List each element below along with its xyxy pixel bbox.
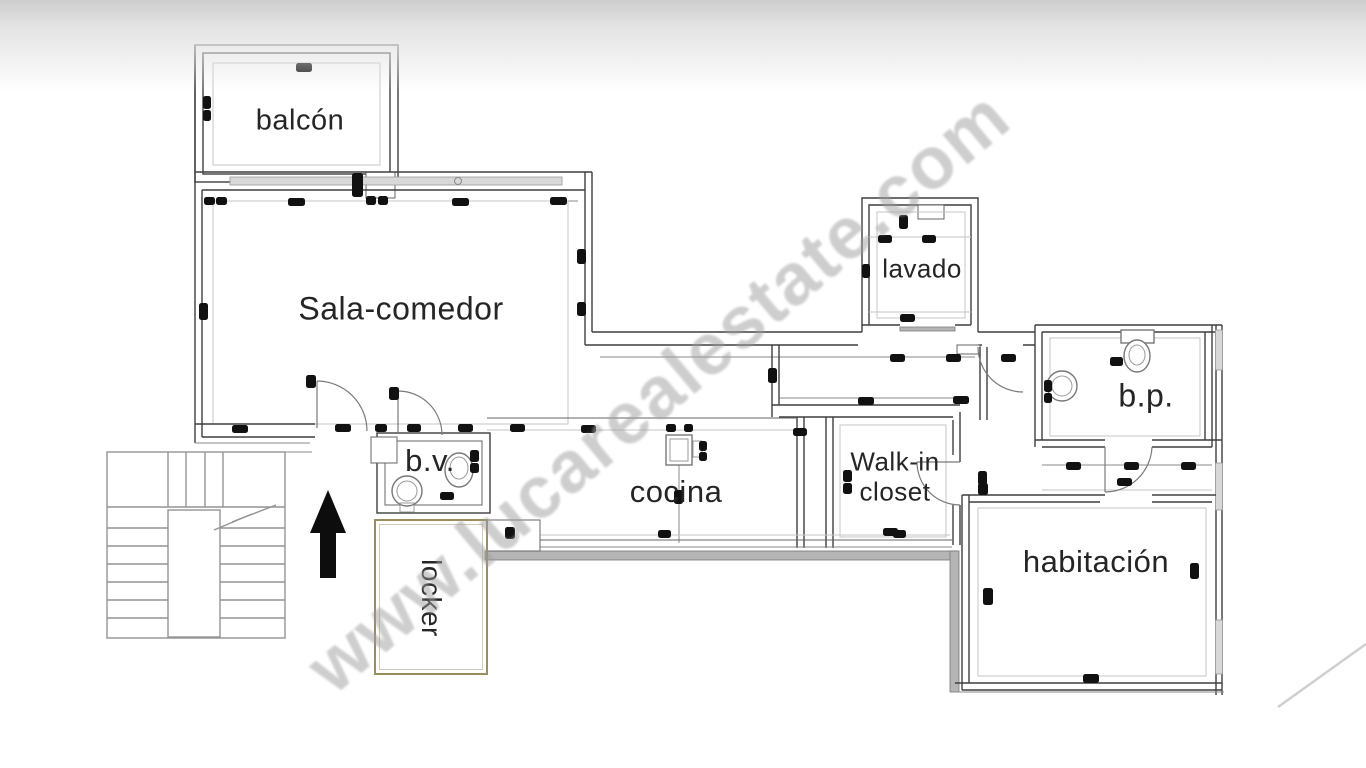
room-label-lavado: lavado bbox=[882, 254, 962, 285]
north-arrow-icon bbox=[310, 490, 346, 578]
dimension-mark bbox=[335, 424, 351, 432]
watermark-stray-line bbox=[1278, 644, 1366, 707]
dimension-mark bbox=[699, 452, 707, 461]
dimension-mark bbox=[883, 528, 898, 536]
dimension-mark bbox=[1083, 674, 1099, 683]
room-label-balcon: balcón bbox=[256, 105, 344, 138]
dimension-mark bbox=[978, 483, 988, 495]
dimension-mark bbox=[366, 196, 376, 205]
dimension-mark bbox=[899, 215, 908, 229]
dimension-mark bbox=[199, 303, 208, 320]
room-label-walkin-line1: Walk-in bbox=[850, 447, 939, 478]
dimension-mark bbox=[1110, 357, 1123, 366]
dimension-mark bbox=[577, 302, 586, 316]
dimension-mark bbox=[900, 314, 915, 322]
dimension-mark bbox=[389, 387, 399, 400]
dimension-mark bbox=[505, 527, 515, 539]
dimension-mark bbox=[203, 96, 211, 109]
staircase bbox=[107, 452, 285, 638]
dimension-mark bbox=[1124, 462, 1139, 470]
room-label-locker: locker bbox=[415, 559, 447, 637]
walls bbox=[195, 45, 1224, 695]
dimension-mark bbox=[983, 588, 993, 605]
dimension-mark bbox=[216, 197, 227, 205]
dimension-mark bbox=[452, 198, 469, 206]
dimension-mark bbox=[306, 375, 316, 388]
dimension-mark bbox=[768, 368, 777, 383]
dimension-mark bbox=[1117, 478, 1132, 486]
dimension-mark bbox=[1044, 393, 1052, 403]
dimension-mark bbox=[684, 424, 693, 432]
dimension-mark bbox=[793, 428, 807, 436]
dimension-mark bbox=[581, 425, 596, 433]
dimension-mark bbox=[232, 425, 248, 433]
dimension-mark bbox=[470, 450, 479, 462]
dimension-mark bbox=[470, 463, 479, 473]
dimension-mark bbox=[458, 424, 473, 432]
dimension-mark bbox=[890, 354, 905, 362]
dimension-mark bbox=[378, 196, 388, 205]
dimension-mark bbox=[440, 492, 454, 500]
room-label-habitacion: habitación bbox=[1023, 544, 1169, 580]
dimension-mark bbox=[1044, 380, 1052, 392]
room-label-sala-comedor: Sala-comedor bbox=[298, 291, 503, 328]
room-label-bv: b.v. bbox=[405, 443, 455, 479]
room-label-cocina: cocina bbox=[630, 474, 723, 510]
dimension-mark bbox=[352, 173, 363, 197]
dimension-mark bbox=[204, 197, 215, 205]
dimension-mark bbox=[407, 424, 421, 432]
dimension-mark bbox=[922, 235, 936, 243]
dimension-mark bbox=[1001, 354, 1016, 362]
dimension-mark bbox=[550, 197, 567, 205]
dimension-mark bbox=[1190, 563, 1199, 579]
dimension-mark bbox=[843, 483, 852, 494]
floor-plan-page: balcón Sala-comedor lavado b.p. cocina W… bbox=[0, 0, 1366, 768]
door-swings bbox=[317, 347, 1152, 505]
dimension-mark bbox=[878, 235, 892, 243]
dimension-mark bbox=[203, 110, 211, 121]
dimension-mark bbox=[288, 198, 305, 206]
room-label-walkin-line2: closet bbox=[860, 477, 931, 508]
dimension-mark bbox=[666, 424, 676, 432]
dimension-mark bbox=[699, 441, 707, 451]
cocina-stove-icon bbox=[666, 435, 702, 465]
dimension-mark bbox=[862, 264, 870, 278]
dimension-mark bbox=[658, 530, 671, 538]
room-label-bp: b.p. bbox=[1118, 378, 1173, 415]
dimension-mark bbox=[1181, 462, 1196, 470]
dimension-mark bbox=[858, 397, 874, 405]
dimension-mark bbox=[946, 354, 961, 362]
dimension-mark bbox=[375, 424, 387, 432]
dimension-mark bbox=[953, 396, 969, 404]
dimension-mark bbox=[577, 249, 586, 264]
dimension-mark bbox=[296, 63, 312, 72]
dimension-mark bbox=[1066, 462, 1081, 470]
dimension-mark bbox=[510, 424, 525, 432]
